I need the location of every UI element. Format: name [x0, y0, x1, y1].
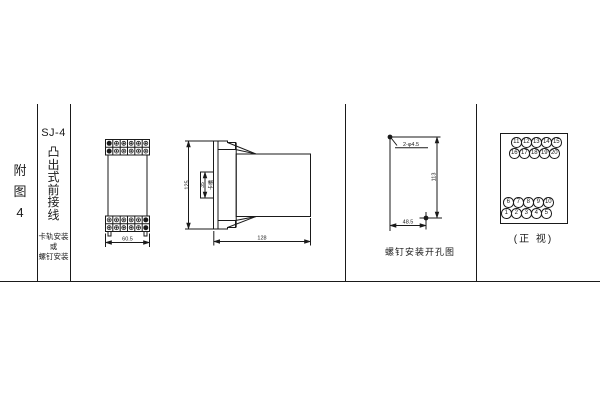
dark-screw-icon	[143, 225, 148, 230]
terminal-circle: 11	[511, 137, 522, 148]
terminal-circle: 3	[521, 208, 532, 219]
terminal-circle: 14	[541, 137, 552, 148]
model-label: SJ-4	[37, 127, 70, 139]
terminal-circle: 8	[523, 197, 534, 208]
terminal-circle: 19	[539, 148, 550, 159]
type-char: 线	[47, 209, 59, 222]
bottom-rule-line	[0, 281, 600, 282]
terminal-circle: 1	[501, 208, 512, 219]
terminal-circle: 7	[513, 197, 524, 208]
terminal-circle: 4	[531, 208, 542, 219]
divider-line	[476, 104, 477, 281]
slot-label: 卡槽	[208, 180, 215, 190]
terminal-circle: 12	[521, 137, 532, 148]
side-view-drawing: 125 35 卡槽 128	[180, 128, 325, 253]
type-char: 凸	[47, 146, 59, 159]
drill-caption: 螺钉安装开孔图	[368, 245, 472, 258]
hole-horizontal-distance-label: 48.5	[403, 220, 414, 226]
mounting-note-line: 或	[36, 242, 71, 252]
divider-line	[345, 104, 346, 281]
figure-char: 附	[13, 164, 26, 177]
terminal-circle: 10	[543, 197, 554, 208]
depth-dimension-label: 128	[257, 236, 266, 242]
height-dimension-label: 125	[185, 180, 191, 189]
terminal-circle: 20	[549, 148, 560, 159]
slot-dimension-label: 35	[200, 182, 206, 188]
drill-template-drawing: 2-φ4.5 113 48.5	[370, 125, 470, 255]
figure-char: 4	[16, 206, 23, 219]
figure-number-label: 附 图 4	[8, 164, 32, 219]
terminal-circle: 9	[533, 197, 544, 208]
terminal-circle: 16	[509, 148, 520, 159]
terminal-circle: 17	[519, 148, 530, 159]
type-char: 式	[47, 171, 59, 184]
front-view-caption: (正 视)	[500, 230, 567, 245]
terminal-circle: 13	[531, 137, 542, 148]
mounting-note: 卡轨安装 或 螺钉安装	[36, 232, 71, 262]
mounting-note-line: 螺钉安装	[36, 252, 71, 262]
drawing-sheet: 附 图 4 SJ-4 凸 出 式 前 接 线 卡轨安装 或 螺钉安装	[0, 0, 600, 400]
terminal-circle: 6	[503, 197, 514, 208]
mounting-hole-icon	[424, 216, 429, 221]
mounting-hole-icon	[388, 135, 393, 140]
relay-type-label: 凸 出 式 前 接 线	[37, 146, 70, 222]
terminal-circle: 15	[551, 137, 562, 148]
hole-size-label: 2-φ4.5	[403, 142, 419, 148]
front-view-drawing: 60.5	[95, 130, 165, 255]
terminal-circle: 18	[529, 148, 540, 159]
hole-vertical-distance-label: 113	[432, 173, 438, 182]
dark-screw-icon	[107, 149, 112, 154]
width-dimension-label: 60.5	[122, 237, 133, 243]
dark-screw-icon	[107, 141, 112, 146]
terminal-circle: 2	[511, 208, 522, 219]
figure-char: 图	[13, 185, 26, 198]
dark-screw-icon	[143, 217, 148, 222]
terminal-circle: 5	[541, 208, 552, 219]
mounting-note-line: 卡轨安装	[36, 232, 71, 242]
